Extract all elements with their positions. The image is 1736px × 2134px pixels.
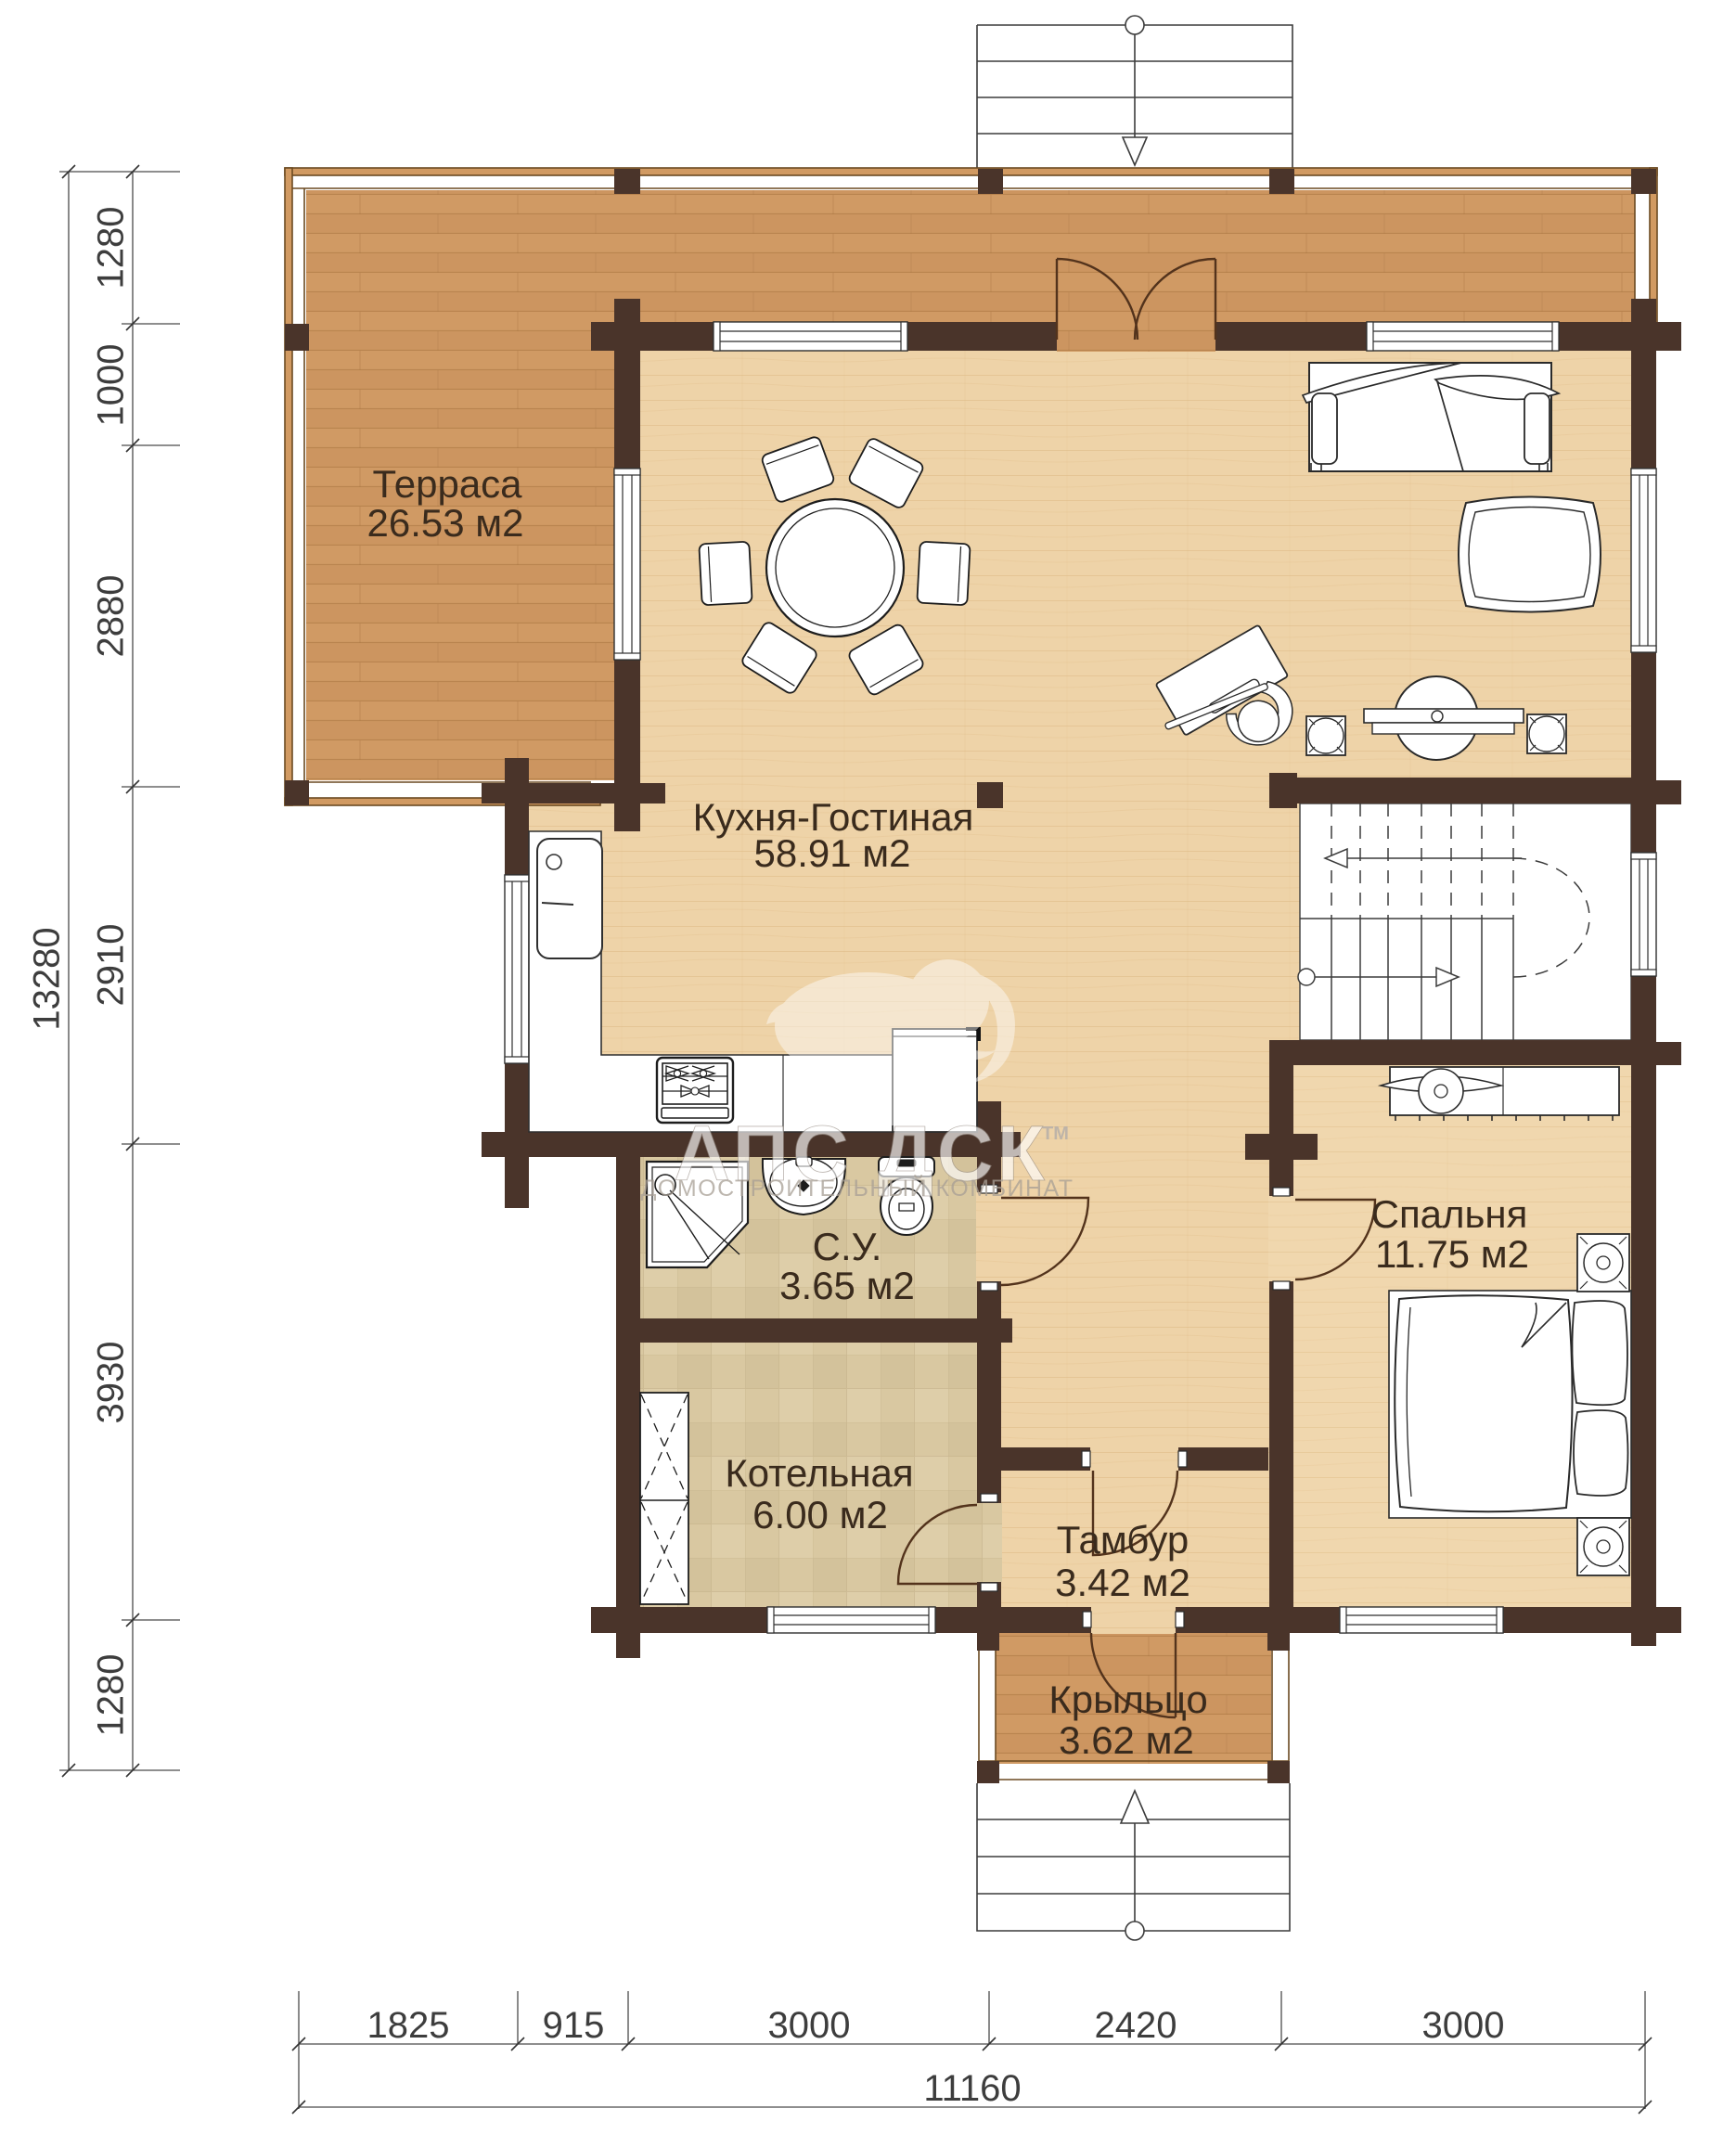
svg-text:С.У.: С.У.	[813, 1225, 882, 1268]
svg-text:3000: 3000	[1422, 2005, 1505, 2046]
svg-text:Тамбур: Тамбур	[1057, 1518, 1189, 1562]
svg-text:13280: 13280	[27, 927, 68, 1030]
svg-text:Крыльцо: Крыльцо	[1048, 1678, 1207, 1721]
svg-text:Спальня: Спальня	[1371, 1192, 1528, 1236]
svg-text:Терраса: Терраса	[372, 462, 522, 506]
svg-text:2420: 2420	[1095, 2005, 1177, 2046]
svg-text:11160: 11160	[923, 2068, 1021, 2109]
svg-text:3.42 м2: 3.42 м2	[1055, 1561, 1190, 1604]
svg-text:58.91 м2: 58.91 м2	[753, 831, 910, 875]
svg-text:11.75 м2: 11.75 м2	[1375, 1232, 1529, 1276]
svg-text:2880: 2880	[91, 575, 132, 658]
svg-text:1000: 1000	[91, 344, 132, 427]
svg-text:1280: 1280	[91, 207, 132, 289]
svg-text:3.62 м2: 3.62 м2	[1059, 1718, 1194, 1762]
svg-text:1825: 1825	[367, 2005, 450, 2046]
svg-text:ДОМОСТРОИТЕЛЬНЫЙ КОМБИНАТ: ДОМОСТРОИТЕЛЬНЫЙ КОМБИНАТ	[640, 1174, 1074, 1202]
svg-text:3930: 3930	[91, 1342, 132, 1424]
svg-text:915: 915	[543, 2005, 605, 2046]
svg-text:3.65 м2: 3.65 м2	[779, 1264, 915, 1307]
svg-text:6.00 м2: 6.00 м2	[752, 1493, 888, 1536]
svg-text:3000: 3000	[768, 2005, 851, 2046]
svg-text:1280: 1280	[91, 1654, 132, 1737]
svg-text:2910: 2910	[91, 924, 132, 1007]
svg-text:26.53 м2: 26.53 м2	[366, 501, 523, 545]
svg-text:Котельная: Котельная	[725, 1451, 913, 1495]
svg-text:ТМ: ТМ	[1042, 1124, 1069, 1144]
